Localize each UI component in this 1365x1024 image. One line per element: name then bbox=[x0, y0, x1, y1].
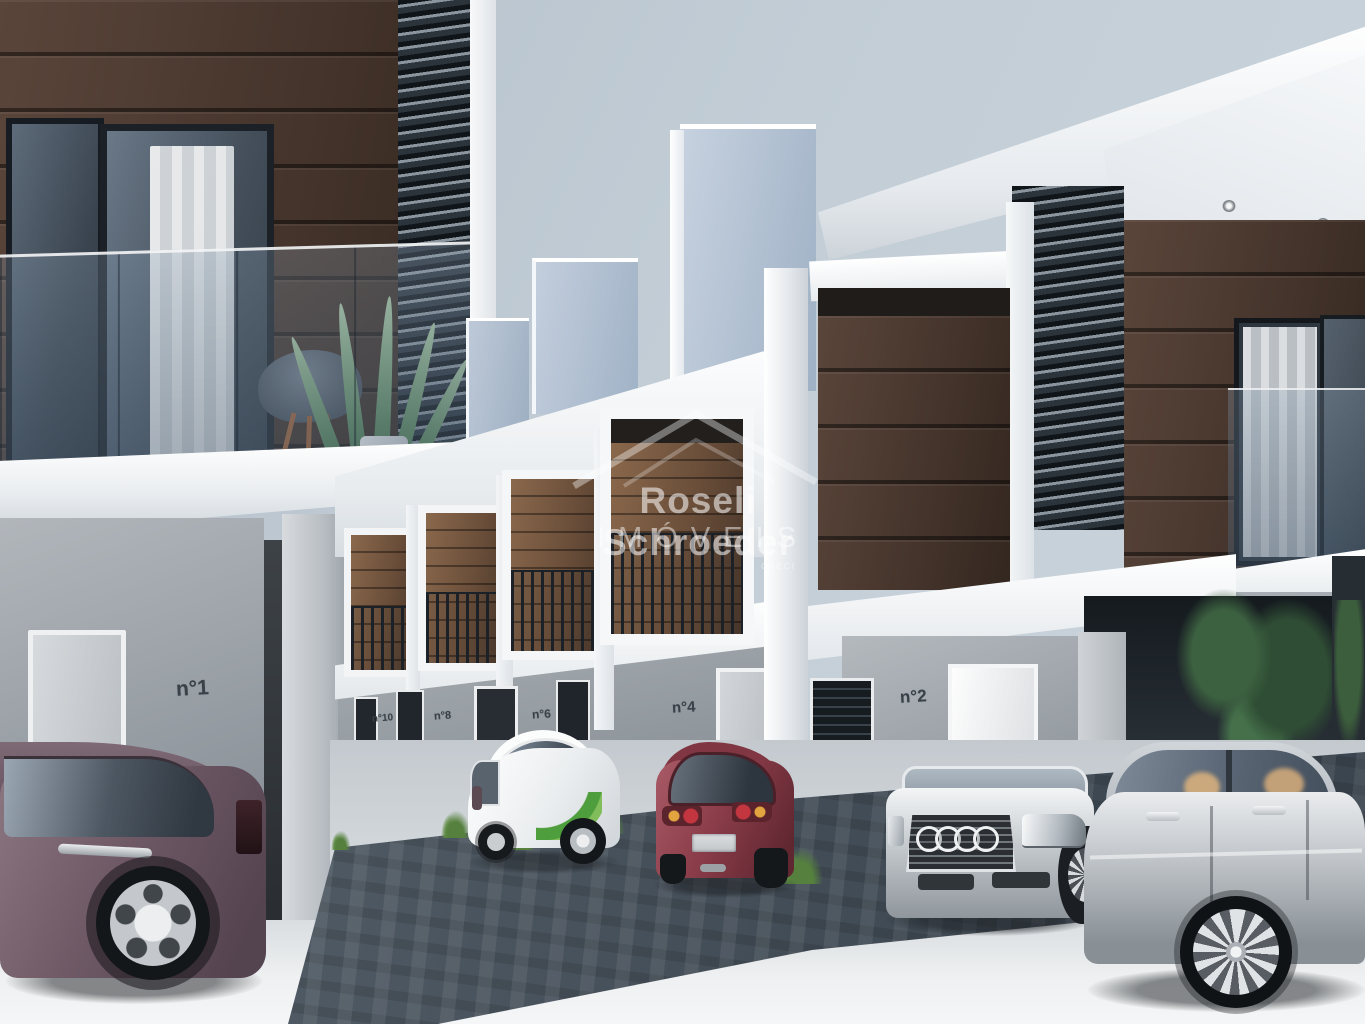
grass-tuft bbox=[328, 816, 354, 850]
unit8-balcony-railing bbox=[426, 592, 504, 663]
recessed-ceiling-light bbox=[1222, 200, 1236, 212]
car5-wheel bbox=[1180, 896, 1292, 1008]
watermark: Roseli Schroeder IMÓVEIS CRECI bbox=[548, 404, 848, 604]
car4-headlight-left bbox=[888, 816, 904, 846]
car1-rear-window bbox=[4, 756, 214, 837]
audi-ring bbox=[973, 826, 999, 852]
watermark-brand-category: IMÓVEIS bbox=[548, 522, 848, 555]
right-balcony-glass-balustrade bbox=[1228, 388, 1365, 568]
car3-rear-wheel-left bbox=[660, 854, 686, 884]
car3-license-plate bbox=[692, 834, 736, 852]
render-scene: n°1 n°10 n°8 n°6 n°4 bbox=[0, 0, 1365, 1024]
car3-taillight-left bbox=[662, 806, 702, 826]
unit2-frame-right bbox=[1006, 202, 1034, 604]
car2-front-wheel bbox=[560, 818, 606, 864]
car3-exhaust bbox=[700, 864, 726, 872]
unit2-box-reveal bbox=[818, 288, 1010, 316]
row-chimney-unit4-edge bbox=[670, 130, 684, 386]
car5-wheel-rim bbox=[1193, 909, 1279, 995]
row-chimney-unit8 bbox=[466, 318, 529, 439]
watermark-creci: CRECI bbox=[761, 562, 796, 571]
car3-rear-wheel-right bbox=[754, 848, 788, 888]
unit2-number-label: n°2 bbox=[900, 687, 927, 705]
car5-wheel-cap bbox=[1226, 942, 1246, 962]
watermark-house-icon bbox=[570, 404, 820, 492]
car4-bumper-intake-right bbox=[992, 872, 1050, 888]
unit10-number-label: n°10 bbox=[372, 713, 394, 724]
car1-taillight bbox=[236, 800, 262, 854]
car4-audi-rings-logo bbox=[916, 826, 1006, 850]
unit10-balcony-railing bbox=[351, 606, 413, 670]
unit8-number-label: n°8 bbox=[434, 710, 452, 722]
car4-bumper-intake-left bbox=[918, 874, 974, 890]
unit1-number-label: n°1 bbox=[175, 677, 209, 700]
car5-door-handle bbox=[1252, 806, 1286, 815]
right-edge-plant bbox=[1334, 600, 1364, 740]
car2-rear-lamp bbox=[472, 786, 482, 810]
car2-rear-wheel bbox=[478, 824, 514, 860]
car4-headlight-right bbox=[1022, 814, 1086, 848]
row-chimney-unit6 bbox=[532, 258, 638, 414]
unit4-number-label: n°4 bbox=[672, 699, 696, 715]
car3-taillight-right bbox=[732, 802, 772, 822]
car2-front-hub bbox=[570, 828, 596, 854]
car5-door-handle bbox=[1146, 812, 1180, 821]
car1-wheel-rim bbox=[110, 880, 196, 966]
unit6-number-label: n°6 bbox=[532, 708, 551, 721]
car2-rear-hub bbox=[487, 833, 505, 851]
car1-wheel bbox=[96, 866, 210, 980]
